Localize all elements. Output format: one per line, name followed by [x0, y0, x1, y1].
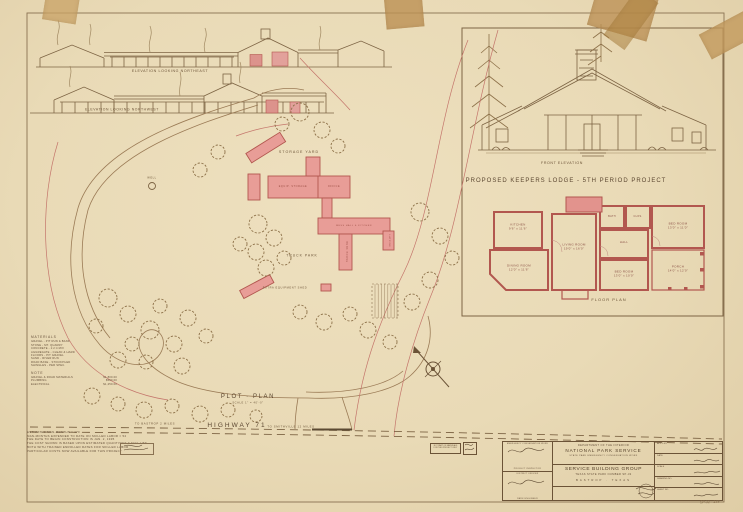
- room-label-dining: DINING ROOM12'0" x 11'6": [507, 264, 531, 271]
- label-well: WELL: [147, 178, 156, 181]
- materials-legend: MATERIALS GRAVEL - PIT RUN & BANK STONE …: [31, 336, 117, 386]
- titleblock-blank-cell: [553, 487, 654, 500]
- titleblock: EMERGENCY CONSERVATION WORK PROJECT INSP…: [502, 441, 723, 501]
- titleblock-row: DATE: [655, 454, 723, 466]
- stamp-value-box: [463, 442, 477, 455]
- revision-stamp: [120, 443, 154, 455]
- titleblock-center-column: DEPARTMENT OF THE INTERIOR NATIONAL PARK…: [553, 442, 655, 500]
- label-plot-scale: SCALE 1" = 40'-0": [232, 403, 263, 406]
- signature-caption: EMERGENCY CONSERVATION WORK: [503, 443, 552, 445]
- signature-role: PROJECT INSPECTOR: [503, 468, 552, 470]
- room-label-bedroom-2: BED ROOM13'0" x 10'0": [614, 270, 634, 277]
- plot-buildings: [149, 132, 395, 298]
- room-label-living: LIVING ROOM19'0" x 16'0": [562, 243, 585, 250]
- signature-cell-inspector: EMERGENCY CONSERVATION WORK PROJECT INSP…: [503, 442, 552, 472]
- titleblock-right-column: APP'D BY DATE SCALE DRAWING NO. SHEET NO…: [655, 442, 723, 500]
- signature-cell-engineer: DISTRICT OFFICER PARK ENGINEER: [503, 472, 552, 501]
- label-elevation-northwest: ELEVATION LOOKING NORTHWEST: [85, 108, 159, 111]
- label-truck-park: TRUCK PARK: [286, 254, 318, 257]
- signature-caption: DISTRICT OFFICER: [503, 473, 552, 475]
- label-latrine: LATRINE: [387, 234, 389, 247]
- elevation-ne-linework: [36, 20, 392, 67]
- label-lodge-title: PROPOSED KEEPERS LODGE - 5TH PERIOD PROJ…: [466, 178, 667, 184]
- room-label-bath: BATH: [608, 215, 616, 219]
- label-floor-plan: FLOOR PLAN: [591, 298, 626, 302]
- note-item: ELECTRICAL$1,250.00: [31, 383, 117, 386]
- agency-line: NATIONAL PARK SERVICE: [553, 448, 654, 453]
- label-front-elevation: FRONT ELEVATION: [541, 162, 583, 166]
- label-extra-equipment-shed: EXTRA EQUIPMENT SHED: [263, 288, 308, 291]
- label-to-smithville: TO SMITHVILLE 12 MILES: [267, 426, 314, 429]
- label-bunk-house: BUNK HOUSE: [344, 241, 346, 262]
- room-label-kitchen: KITCHEN9'6" x 11'6": [509, 223, 527, 230]
- titleblock-row: SCALE: [655, 465, 723, 477]
- tape-mark: [384, 0, 425, 30]
- room-label-closet: CLOS.: [633, 215, 642, 219]
- titleblock-row: DRAWING NO.: [655, 477, 723, 489]
- lodge-floorplan-linework: [490, 197, 704, 299]
- label-office: OFFICE: [328, 186, 340, 188]
- materials-stamp: NOT PART OF MATERIALS FOR THIS PROJECT O…: [430, 443, 461, 454]
- note-title: NOTE: [31, 372, 117, 375]
- lodge-elevation-linework: [470, 24, 716, 156]
- label-elevation-northeast: ELEVATION LOOKING NORTHEAST: [132, 70, 208, 74]
- label-plot-plan: PLOT · PLAN: [221, 394, 275, 400]
- label-to-bastrop: TO BASTROP 2 MILES: [135, 423, 175, 426]
- legend-title: MATERIALS: [31, 336, 117, 339]
- label-storage-yard: STORAGE YARD: [279, 151, 319, 155]
- lodge-inset-frame: [462, 28, 723, 316]
- project-title: SERVICE BUILDING GROUP: [553, 467, 654, 472]
- project-cell: SERVICE BUILDING GROUP TEXAS STATE PARK …: [553, 465, 654, 487]
- label-mess-hall: MESS HALL & KITCHEN: [336, 225, 372, 227]
- titleblock-row: APP'D BY: [655, 442, 723, 454]
- titleblock-signature-column: EMERGENCY CONSERVATION WORK PROJECT INSP…: [503, 442, 553, 500]
- label-highway-71: HIGHWAY 71: [207, 423, 266, 430]
- dept-line: DEPARTMENT OF THE INTERIOR: [553, 444, 654, 447]
- titleblock-row: SHEET NO.: [655, 488, 723, 500]
- location-line: BASTROP · TEXAS: [553, 478, 654, 482]
- room-label-hall: HALL: [620, 241, 628, 245]
- room-label-bedroom-1: BED ROOM13'0" x 11'0": [668, 222, 688, 229]
- legend-item: SHINGLES - PER SPEC.: [31, 364, 117, 367]
- park-line: TEXAS STATE PARK NUMBER SP-32: [553, 473, 654, 476]
- sub-line: STATE PARK EMERGENCY CONSERVATION WORK: [553, 455, 654, 457]
- room-label-porch: PORCH14'0" x 12'0": [668, 265, 688, 272]
- signature-role: PARK ENGINEER: [503, 498, 552, 500]
- plot-roads-linework: [71, 88, 430, 430]
- corner-drawing-number: SP.32 - 138: [700, 501, 720, 505]
- drawing-sheet: ELEVATION LOOKING NORTHEAST ELEVATION LO…: [0, 0, 743, 512]
- label-equipment-storage: EQUIP. STORAGE: [279, 186, 308, 188]
- agency-cell: DEPARTMENT OF THE INTERIOR NATIONAL PARK…: [553, 442, 654, 465]
